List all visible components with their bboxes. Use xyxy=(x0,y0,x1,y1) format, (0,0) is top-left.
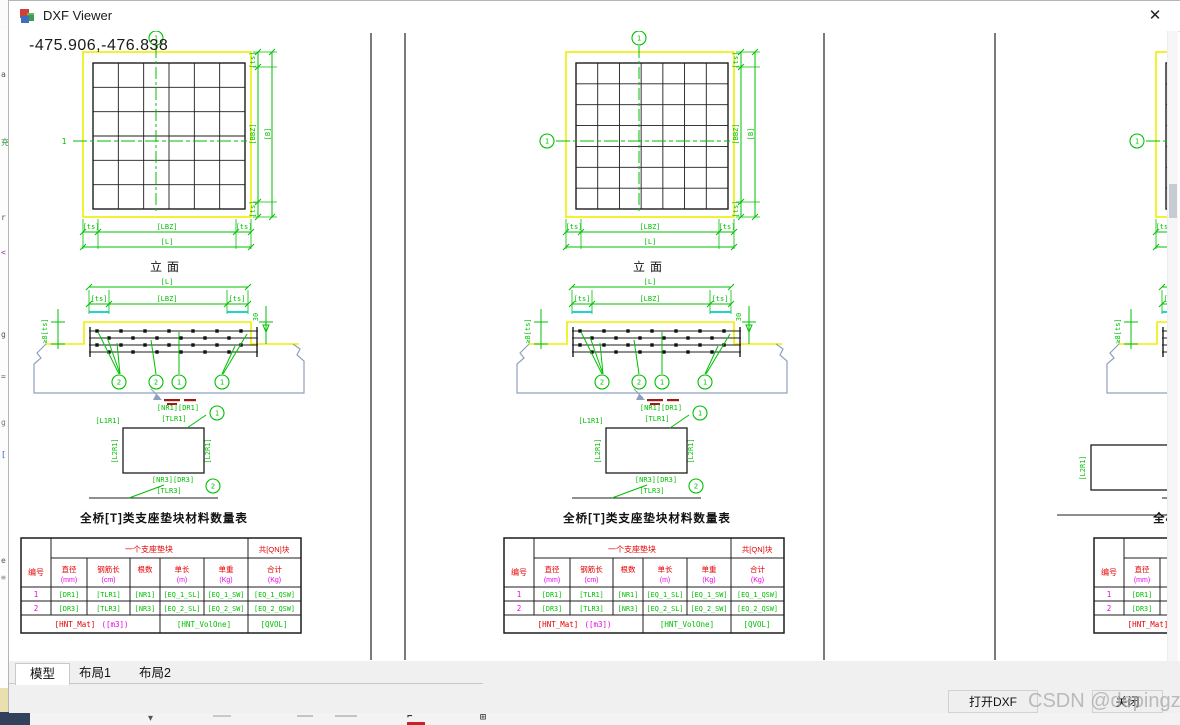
plan-view: 11[ts][BBZ][ts][B][ts][LBZ][ts][L] xyxy=(62,31,277,250)
svg-text:[TLR1]: [TLR1] xyxy=(161,415,186,423)
plan-view: 11[ts][BBZ][ts][B][ts][LBZ][ts][L] xyxy=(1130,31,1169,250)
svg-text:[DR1]: [DR1] xyxy=(59,591,79,599)
svg-text:1: 1 xyxy=(698,410,702,418)
toolbar-icon-red: ⌐ xyxy=(407,712,425,725)
tab-layout2[interactable]: 布局2 xyxy=(125,663,185,684)
svg-text:[ts]: [ts] xyxy=(249,201,257,218)
svg-text:钢筋长: 钢筋长 xyxy=(97,564,120,574)
svg-text:1: 1 xyxy=(660,379,664,387)
svg-text:[BBZ]: [BBZ] xyxy=(249,123,257,144)
svg-text:[LBZ]: [LBZ] xyxy=(639,223,660,231)
svg-text:[EQ_2_SL]: [EQ_2_SL] xyxy=(164,605,201,613)
dropdown-arrow-icon: ▾ xyxy=(148,713,153,723)
svg-text:[EQ_2_SL]: [EQ_2_SL] xyxy=(647,605,684,613)
svg-text:直径: 直径 xyxy=(1135,564,1151,574)
toolbar-icon: ⊞ xyxy=(480,712,498,722)
svg-text:[DR3]: [DR3] xyxy=(1132,605,1152,613)
svg-text:(cm): (cm) xyxy=(585,577,599,584)
svg-text:(mm): (mm) xyxy=(1134,577,1150,584)
svg-text:(Kg): (Kg) xyxy=(219,577,232,584)
svg-text:1: 1 xyxy=(1135,138,1139,146)
svg-text:单长: 单长 xyxy=(175,564,190,574)
svg-text:[L1R1]: [L1R1] xyxy=(95,417,120,425)
material-table: 全桥[T]类支座垫块材料数量表编号一个支座垫块共[QN]块直径钢筋长根数单长单重… xyxy=(21,511,301,633)
svg-text:[TLR3]: [TLR3] xyxy=(579,605,604,613)
window-title: DXF Viewer xyxy=(43,8,112,23)
svg-text:1: 1 xyxy=(1107,590,1112,599)
svg-text:[HNT_VolOne]: [HNT_VolOne] xyxy=(177,620,231,629)
svg-text:共[QN]块: 共[QN]块 xyxy=(259,544,290,554)
toolbar-icon xyxy=(297,715,313,725)
background-code-editor: a充r<g=g[e≡ xyxy=(0,30,8,690)
svg-text:(m): (m) xyxy=(177,577,188,584)
vertical-scrollbar[interactable] xyxy=(1167,31,1178,661)
code-fragment: = xyxy=(1,372,6,381)
svg-text:[L]: [L] xyxy=(644,238,657,246)
svg-text:1: 1 xyxy=(220,379,224,387)
svg-text:[ts]: [ts] xyxy=(566,223,583,231)
svg-text:[TLR1]: [TLR1] xyxy=(644,415,669,423)
svg-text:(m): (m) xyxy=(660,577,671,584)
svg-text:[EQ_1_SW]: [EQ_1_SW] xyxy=(691,591,728,599)
svg-text:全桥[T]类支座垫块材料数量表: 全桥[T]类支座垫块材料数量表 xyxy=(562,511,731,525)
svg-text:30: 30 xyxy=(735,313,743,321)
title-bar[interactable]: DXF Viewer ✕ xyxy=(9,1,1180,32)
svg-text:[ts]: [ts] xyxy=(719,223,736,231)
svg-text:2: 2 xyxy=(600,379,604,387)
code-fragment: < xyxy=(1,248,6,257)
svg-text:[NR3][DR3]: [NR3][DR3] xyxy=(152,476,194,484)
svg-text:1: 1 xyxy=(517,590,522,599)
svg-text:单重: 单重 xyxy=(219,564,234,574)
svg-text:钢筋长: 钢筋长 xyxy=(580,564,603,574)
svg-text:[HNT_Mat]: [HNT_Mat] xyxy=(55,620,96,629)
code-fragment: r xyxy=(1,213,6,222)
svg-text:直径: 直径 xyxy=(545,564,560,574)
svg-text:[B]: [B] xyxy=(747,128,755,141)
code-fragment: e xyxy=(1,556,6,565)
svg-text:[EQ_2_SW]: [EQ_2_SW] xyxy=(691,605,728,613)
svg-text:一个支座垫块: 一个支座垫块 xyxy=(608,544,656,554)
svg-text:[ts]: [ts] xyxy=(249,52,257,69)
svg-text:[TLR3]: [TLR3] xyxy=(156,487,181,495)
svg-text:单重: 单重 xyxy=(702,564,717,574)
svg-text:[ts]: [ts] xyxy=(732,201,740,218)
svg-text:根数: 根数 xyxy=(621,564,636,574)
toolbar-icon xyxy=(213,715,231,725)
svg-text:1: 1 xyxy=(34,590,39,599)
app-icon xyxy=(19,8,35,24)
dialog-footer: 打开DXF 关闭 xyxy=(9,685,1180,713)
svg-text:根数: 根数 xyxy=(138,564,153,574)
svg-text:1: 1 xyxy=(637,35,641,43)
svg-text:2: 2 xyxy=(1107,604,1112,613)
svg-text:[DR1]: [DR1] xyxy=(542,591,562,599)
svg-text:2: 2 xyxy=(211,483,215,491)
dxf-viewer-window: DXF Viewer ✕ 11[ts][BBZ][ts][B][ts][LBZ]… xyxy=(8,0,1180,712)
svg-text:[LBZ]: [LBZ] xyxy=(156,295,177,303)
svg-text:≥8[ts]: ≥8[ts] xyxy=(1114,318,1122,343)
layout-tab-bar: 模型 布局1 布局2 xyxy=(9,661,1180,685)
svg-text:[BBZ]: [BBZ] xyxy=(732,123,740,144)
svg-text:[NR3]: [NR3] xyxy=(618,605,638,613)
svg-text:[EQ_1_QSW]: [EQ_1_QSW] xyxy=(254,591,295,599)
svg-text:[L]: [L] xyxy=(644,278,657,286)
background-taskbar-block xyxy=(0,712,30,725)
svg-text:(mm): (mm) xyxy=(544,577,560,584)
svg-text:[ts]: [ts] xyxy=(83,223,100,231)
svg-text:[L2R1]: [L2R1] xyxy=(687,438,695,463)
elevation-view: 立面[L][ts][LBZ][ts]2211≥8[ts]30 xyxy=(517,259,787,405)
svg-text:[L1R1]: [L1R1] xyxy=(578,417,603,425)
svg-text:(Kg): (Kg) xyxy=(268,577,281,584)
svg-text:30: 30 xyxy=(252,313,260,321)
plan-view: 11[ts][BBZ][ts][B][ts][LBZ][ts][L] xyxy=(540,31,760,250)
svg-text:≥8[ts]: ≥8[ts] xyxy=(524,318,532,343)
svg-text:[L]: [L] xyxy=(161,238,174,246)
svg-text:1: 1 xyxy=(215,410,219,418)
detail-view-fragment: [L2R1] xyxy=(1057,445,1169,515)
svg-text:全桥[T]类支座垫块材料数量表: 全桥[T]类支座垫块材料数量表 xyxy=(79,511,248,525)
elevation-view: 立面[L][ts][LBZ][ts]2211≥8[ts]30 xyxy=(1107,259,1169,405)
svg-text:[QVOL]: [QVOL] xyxy=(260,620,287,629)
svg-text:[DR3]: [DR3] xyxy=(542,605,562,613)
cad-drawing: 11[ts][BBZ][ts][B][ts][LBZ][ts][L]立面[L][… xyxy=(9,31,1169,661)
svg-text:(cm): (cm) xyxy=(102,577,116,584)
svg-text:1: 1 xyxy=(177,379,181,387)
svg-text:[L2R1]: [L2R1] xyxy=(594,438,602,463)
svg-text:[EQ_2_SW]: [EQ_2_SW] xyxy=(208,605,245,613)
close-icon[interactable]: ✕ xyxy=(1144,5,1166,27)
svg-text:[NR1]: [NR1] xyxy=(618,591,638,599)
svg-text:[HNT_VolOne]: [HNT_VolOne] xyxy=(660,620,714,629)
svg-text:[ts]: [ts] xyxy=(236,223,253,231)
svg-text:编号: 编号 xyxy=(28,567,44,577)
svg-text:[LBZ]: [LBZ] xyxy=(639,295,660,303)
scrollbar-thumb[interactable] xyxy=(1169,184,1177,218)
svg-text:编号: 编号 xyxy=(1101,567,1117,577)
svg-text:[TLR3]: [TLR3] xyxy=(639,487,664,495)
svg-text:编号: 编号 xyxy=(511,567,527,577)
svg-text:(Kg): (Kg) xyxy=(751,577,764,584)
svg-text:单长: 单长 xyxy=(658,564,673,574)
svg-text:[DR1]: [DR1] xyxy=(1132,591,1152,599)
drawing-unit: 11[ts][BBZ][ts][B][ts][LBZ][ts][L]立面[L][… xyxy=(21,31,304,633)
svg-text:[NR1]: [NR1] xyxy=(135,591,155,599)
cad-canvas[interactable]: 11[ts][BBZ][ts][B][ts][LBZ][ts][L]立面[L][… xyxy=(9,31,1169,661)
svg-text:[HNT_Mat]: [HNT_Mat] xyxy=(538,620,579,629)
detail-view: [L1R1][NR1][DR1][TLR1][L2R1][L2R1]1[NR3]… xyxy=(572,404,707,498)
svg-text:≥8[ts]: ≥8[ts] xyxy=(41,318,49,343)
drawing-unit: 11[ts][BBZ][ts][B][ts][LBZ][ts][L]立面[L][… xyxy=(504,31,787,633)
svg-text:[ts]: [ts] xyxy=(574,295,591,303)
svg-text:合计: 合计 xyxy=(750,564,765,574)
svg-text:立面: 立面 xyxy=(150,259,184,274)
svg-text:一个支座垫块: 一个支座垫块 xyxy=(125,544,173,554)
svg-text:(Kg): (Kg) xyxy=(702,577,715,584)
svg-text:([m3]): ([m3]) xyxy=(101,620,128,629)
svg-text:(mm): (mm) xyxy=(61,577,77,584)
svg-text:2: 2 xyxy=(517,604,522,613)
svg-text:[NR3][DR3]: [NR3][DR3] xyxy=(635,476,677,484)
code-fragment: [ xyxy=(1,450,6,459)
svg-text:[ts]: [ts] xyxy=(712,295,729,303)
svg-text:[NR3]: [NR3] xyxy=(135,605,155,613)
svg-text:共[QN]块: 共[QN]块 xyxy=(742,544,773,554)
detail-view: [L1R1][NR1][DR1][TLR1][L2R1][L2R1]1[NR3]… xyxy=(89,404,224,498)
svg-text:1: 1 xyxy=(545,138,549,146)
coords-readout: -475.906,-476.838 xyxy=(29,37,168,55)
svg-text:2: 2 xyxy=(34,604,39,613)
background-panel-block xyxy=(0,688,8,712)
svg-text:2: 2 xyxy=(154,379,158,387)
svg-text:直径: 直径 xyxy=(62,564,77,574)
tab-layout1[interactable]: 布局1 xyxy=(65,663,125,684)
svg-text:[ts]: [ts] xyxy=(91,295,108,303)
code-fragment: g xyxy=(1,330,6,339)
svg-text:[ts]: [ts] xyxy=(229,295,246,303)
svg-text:[TLR3]: [TLR3] xyxy=(96,605,121,613)
toolbar-icon xyxy=(335,715,357,725)
svg-text:立面: 立面 xyxy=(633,259,667,274)
material-table: 全桥[T]类支座垫块材料数量表编号一个支座垫块共[QN]块直径钢筋长根数单长单重… xyxy=(504,511,784,633)
material-table: 全桥[T]类支座垫块材料数量表编号一个支座垫块共[QN]块直径钢筋长根数单长单重… xyxy=(1094,511,1169,633)
svg-text:[DR3]: [DR3] xyxy=(59,605,79,613)
svg-text:2: 2 xyxy=(694,483,698,491)
svg-text:[L2R1]: [L2R1] xyxy=(111,438,119,463)
svg-text:[QVOL]: [QVOL] xyxy=(743,620,770,629)
open-dxf-button[interactable]: 打开DXF xyxy=(948,690,1038,713)
svg-text:2: 2 xyxy=(117,379,121,387)
drawing-unit: 11[ts][BBZ][ts][B][ts][LBZ][ts][L]立面[L][… xyxy=(1094,31,1169,633)
svg-text:[EQ_1_SL]: [EQ_1_SL] xyxy=(164,591,201,599)
svg-text:[NR1][DR1]: [NR1][DR1] xyxy=(157,404,199,412)
svg-text:1: 1 xyxy=(62,137,67,146)
svg-text:[NR1][DR1]: [NR1][DR1] xyxy=(640,404,682,412)
svg-text:[ts]: [ts] xyxy=(732,52,740,69)
svg-text:合计: 合计 xyxy=(267,564,282,574)
close-button[interactable]: 关闭 xyxy=(1092,690,1163,713)
screen: { "window": { "title": "DXF Viewer", "cl… xyxy=(0,0,1180,725)
svg-text:2: 2 xyxy=(637,379,641,387)
svg-text:[EQ_2_QSW]: [EQ_2_QSW] xyxy=(737,605,778,613)
svg-text:[LBZ]: [LBZ] xyxy=(156,223,177,231)
svg-text:([m3]): ([m3]) xyxy=(584,620,611,629)
svg-text:[TLR1]: [TLR1] xyxy=(579,591,604,599)
svg-text:[EQ_1_SL]: [EQ_1_SL] xyxy=(647,591,684,599)
svg-text:[L2R1]: [L2R1] xyxy=(204,438,212,463)
tab-model[interactable]: 模型 xyxy=(15,663,70,686)
code-fragment: 充 xyxy=(1,137,8,148)
code-fragment: a xyxy=(1,70,6,79)
svg-text:[EQ_1_QSW]: [EQ_1_QSW] xyxy=(737,591,778,599)
svg-text:1: 1 xyxy=(703,379,707,387)
svg-text:[TLR1]: [TLR1] xyxy=(96,591,121,599)
svg-text:[B]: [B] xyxy=(264,128,272,141)
code-fragment: ≡ xyxy=(1,573,6,582)
svg-text:[HNT_Mat]: [HNT_Mat] xyxy=(1128,620,1169,629)
code-fragment: g xyxy=(1,418,6,427)
svg-text:[L2R1]: [L2R1] xyxy=(1079,455,1087,480)
svg-text:[EQ_1_SW]: [EQ_1_SW] xyxy=(208,591,245,599)
background-toolbar: ▾ ⌐ ⊞ ++pch.cpp xyxy=(0,712,1180,725)
svg-text:[L]: [L] xyxy=(161,278,174,286)
svg-text:[EQ_2_QSW]: [EQ_2_QSW] xyxy=(254,605,295,613)
elevation-view: 立面[L][ts][LBZ][ts]2211≥8[ts]30 xyxy=(34,259,304,405)
